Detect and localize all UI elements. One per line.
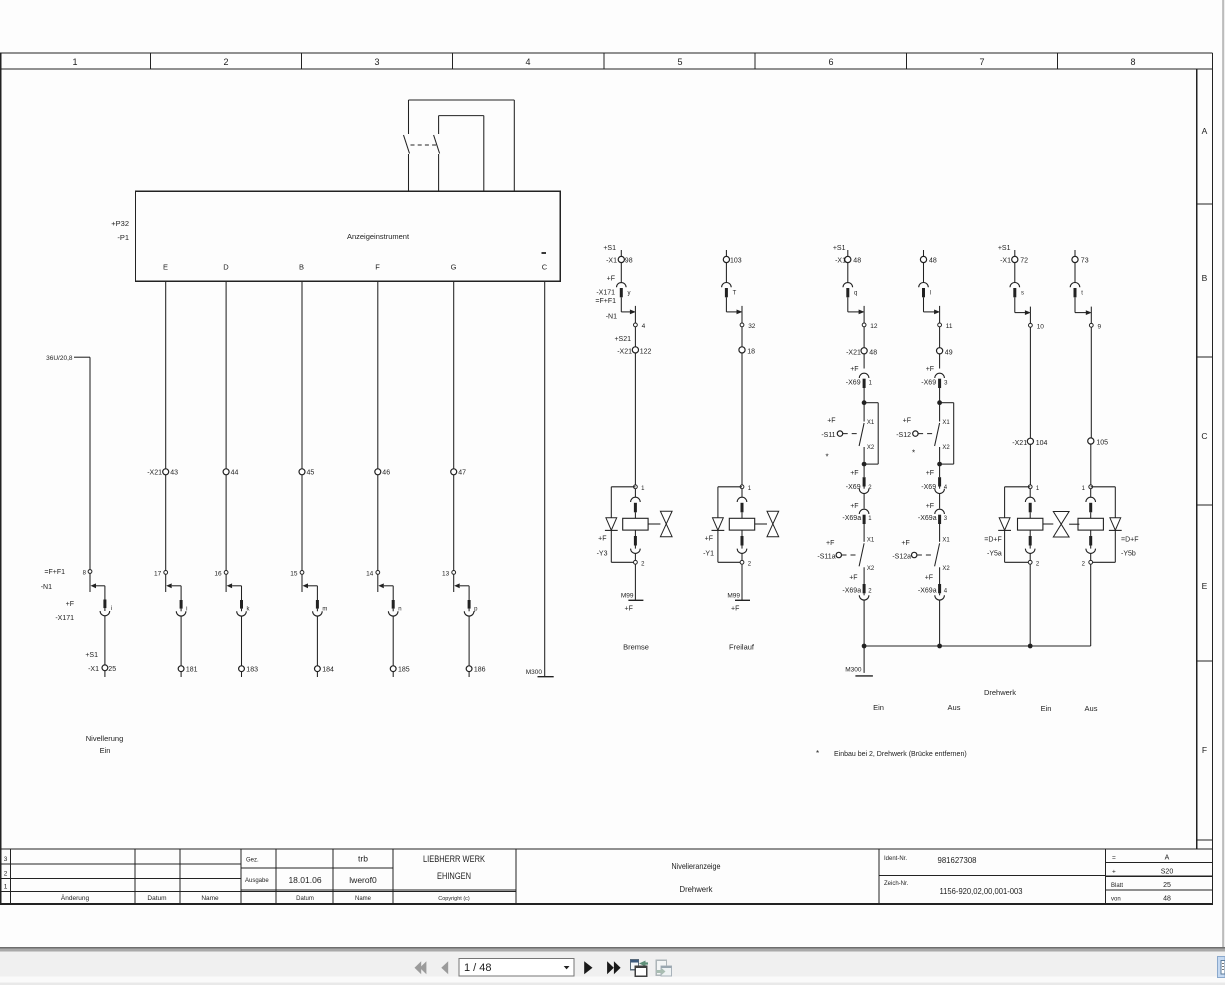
svg-text:+F: +F bbox=[901, 540, 909, 547]
svg-text:Änderung: Änderung bbox=[61, 894, 90, 902]
svg-text:+F: +F bbox=[705, 536, 713, 543]
svg-text:B: B bbox=[1202, 273, 1208, 283]
svg-text:17: 17 bbox=[154, 570, 162, 577]
svg-text:-S11a: -S11a bbox=[817, 553, 835, 560]
svg-text:X2: X2 bbox=[942, 445, 950, 451]
svg-text:7: 7 bbox=[979, 57, 984, 67]
svg-text:15: 15 bbox=[290, 570, 298, 577]
svg-text:3: 3 bbox=[374, 57, 379, 67]
svg-text:=F+F1: =F+F1 bbox=[44, 569, 65, 576]
svg-text:+F: +F bbox=[926, 366, 934, 373]
svg-text:-X1: -X1 bbox=[1000, 258, 1011, 265]
svg-text:105: 105 bbox=[1096, 440, 1108, 447]
svg-text:-X1: -X1 bbox=[835, 258, 846, 265]
svg-text:48: 48 bbox=[853, 258, 861, 265]
svg-text:X2: X2 bbox=[867, 445, 875, 451]
svg-text:m: m bbox=[322, 607, 327, 613]
svg-text:3: 3 bbox=[4, 856, 8, 863]
svg-text:X1: X1 bbox=[942, 420, 950, 426]
svg-text:103: 103 bbox=[730, 258, 742, 265]
svg-text:-X69a: -X69a bbox=[842, 588, 861, 595]
svg-text:X1: X1 bbox=[942, 538, 950, 544]
svg-text:Drehwerk: Drehwerk bbox=[680, 884, 714, 894]
svg-text:X2: X2 bbox=[867, 566, 875, 572]
svg-text:Copyright (c): Copyright (c) bbox=[438, 896, 470, 902]
svg-text:C: C bbox=[542, 263, 548, 272]
svg-text:10: 10 bbox=[1037, 324, 1045, 331]
svg-text:Ausgabe: Ausgabe bbox=[245, 878, 269, 884]
svg-text:11: 11 bbox=[946, 323, 953, 330]
svg-text:185: 185 bbox=[398, 667, 410, 674]
svg-text:X1: X1 bbox=[867, 420, 875, 426]
svg-text:+S1: +S1 bbox=[998, 245, 1011, 252]
svg-text:-X1: -X1 bbox=[88, 666, 99, 673]
svg-text:43: 43 bbox=[170, 470, 178, 477]
svg-text:F: F bbox=[375, 263, 380, 272]
svg-text:46: 46 bbox=[382, 470, 390, 477]
svg-text:2: 2 bbox=[4, 871, 8, 878]
svg-text:-N1: -N1 bbox=[41, 584, 52, 591]
svg-text:186: 186 bbox=[474, 667, 486, 674]
svg-text:+F: +F bbox=[598, 536, 606, 543]
svg-text:-X69: -X69 bbox=[921, 484, 936, 491]
svg-text:47: 47 bbox=[458, 470, 466, 477]
svg-text:E: E bbox=[1202, 581, 1208, 591]
svg-text:M300: M300 bbox=[845, 666, 862, 673]
svg-text:2: 2 bbox=[223, 57, 228, 67]
svg-text:-S11: -S11 bbox=[821, 432, 835, 439]
svg-text:-S12a: -S12a bbox=[892, 553, 911, 560]
svg-text:+F: +F bbox=[850, 470, 858, 477]
svg-text:48: 48 bbox=[869, 349, 877, 356]
svg-text:18.01.06: 18.01.06 bbox=[288, 875, 321, 885]
svg-text:-S12: -S12 bbox=[896, 432, 911, 439]
svg-text:lwerof0: lwerof0 bbox=[349, 875, 377, 885]
svg-text:32: 32 bbox=[748, 323, 756, 330]
svg-text:Blatt: Blatt bbox=[1111, 883, 1123, 889]
svg-text:-X69a: -X69a bbox=[918, 515, 937, 522]
svg-text:981627308: 981627308 bbox=[938, 855, 977, 865]
svg-text:=F+F1: =F+F1 bbox=[595, 298, 616, 305]
svg-text:1156-920,02,00,001-003: 1156-920,02,00,001-003 bbox=[940, 886, 1023, 896]
svg-text:-X1: -X1 bbox=[606, 258, 617, 265]
svg-text:14: 14 bbox=[366, 570, 374, 577]
svg-text:A: A bbox=[1202, 126, 1208, 136]
svg-text:G: G bbox=[451, 263, 457, 272]
svg-text:98: 98 bbox=[625, 258, 633, 265]
svg-text:Ident-Nr.: Ident-Nr. bbox=[884, 856, 907, 862]
svg-text:Freilauf: Freilauf bbox=[729, 643, 755, 652]
svg-text:+S1: +S1 bbox=[833, 245, 846, 252]
svg-text:73: 73 bbox=[1081, 258, 1089, 265]
svg-text:+F: +F bbox=[731, 606, 739, 613]
svg-text:X1: X1 bbox=[867, 538, 875, 544]
svg-text:6: 6 bbox=[828, 57, 833, 67]
svg-text:-X69: -X69 bbox=[846, 484, 861, 491]
svg-text:5: 5 bbox=[677, 57, 682, 67]
svg-text:-X69a: -X69a bbox=[918, 588, 937, 595]
svg-text:A: A bbox=[1165, 855, 1170, 862]
svg-text:Drehwerk: Drehwerk bbox=[984, 688, 1016, 697]
svg-text:l: l bbox=[930, 291, 931, 297]
svg-text:M99: M99 bbox=[621, 593, 634, 600]
svg-text:+F: +F bbox=[926, 470, 934, 477]
svg-text:*: * bbox=[912, 449, 915, 458]
svg-text:F: F bbox=[1202, 745, 1207, 755]
svg-text:i: i bbox=[111, 606, 112, 612]
svg-text:=D+F: =D+F bbox=[984, 536, 1002, 543]
svg-text:-Y5a: -Y5a bbox=[987, 551, 1002, 558]
svg-text:von: von bbox=[1111, 897, 1121, 903]
svg-text:-X21: -X21 bbox=[1012, 440, 1027, 447]
svg-text:+F: +F bbox=[903, 417, 911, 424]
svg-text:49: 49 bbox=[945, 349, 953, 356]
svg-text:+S1: +S1 bbox=[85, 652, 98, 659]
svg-text:Nivelieranzeige: Nivelieranzeige bbox=[672, 861, 721, 871]
svg-text:48: 48 bbox=[929, 258, 937, 265]
svg-text:-X21: -X21 bbox=[617, 349, 632, 356]
svg-text:-X21: -X21 bbox=[846, 349, 861, 356]
svg-text:+F: +F bbox=[849, 574, 857, 581]
svg-text:Aus: Aus bbox=[1085, 704, 1098, 713]
svg-text:+F: +F bbox=[66, 601, 74, 608]
svg-text:Ein: Ein bbox=[100, 746, 111, 755]
svg-text:i: i bbox=[186, 607, 187, 613]
svg-text:y: y bbox=[628, 291, 631, 297]
svg-text:-X69a: -X69a bbox=[842, 515, 861, 522]
svg-text:-X171: -X171 bbox=[596, 290, 615, 297]
svg-text:-Y1: -Y1 bbox=[703, 551, 714, 558]
svg-text:181: 181 bbox=[186, 667, 198, 674]
svg-text:Gez.: Gez. bbox=[246, 858, 259, 864]
svg-text:25: 25 bbox=[1163, 882, 1171, 889]
svg-text:+F: +F bbox=[850, 366, 858, 373]
svg-text:+: + bbox=[1112, 868, 1116, 875]
svg-text:44: 44 bbox=[231, 470, 239, 477]
svg-text:16: 16 bbox=[214, 570, 222, 577]
svg-text:122: 122 bbox=[640, 349, 652, 356]
svg-text:n: n bbox=[398, 607, 401, 613]
svg-text:-Y5b: -Y5b bbox=[1121, 551, 1136, 558]
svg-text:8: 8 bbox=[1130, 57, 1135, 67]
svg-text:Ein: Ein bbox=[1041, 704, 1052, 713]
svg-text:Nivellerung: Nivellerung bbox=[86, 734, 124, 743]
svg-text:Name: Name bbox=[201, 895, 219, 902]
svg-text:=: = bbox=[1112, 855, 1116, 862]
svg-text:M99: M99 bbox=[727, 593, 740, 600]
svg-text:Ein: Ein bbox=[873, 703, 884, 712]
svg-text:1: 1 bbox=[72, 57, 77, 67]
svg-text:45: 45 bbox=[307, 470, 315, 477]
svg-text:12: 12 bbox=[870, 323, 878, 330]
svg-text:+S1: +S1 bbox=[603, 245, 616, 252]
svg-text:=D+F: =D+F bbox=[1121, 536, 1139, 543]
svg-text:trb: trb bbox=[358, 854, 368, 864]
svg-text:Bremse: Bremse bbox=[623, 643, 649, 652]
svg-text:q: q bbox=[854, 291, 857, 297]
svg-text:4: 4 bbox=[525, 57, 530, 67]
svg-text:Name: Name bbox=[355, 896, 372, 902]
svg-text:s: s bbox=[1021, 291, 1024, 297]
svg-text:S20: S20 bbox=[1161, 869, 1174, 876]
svg-text:-N1: -N1 bbox=[606, 314, 617, 321]
svg-text:+P32: +P32 bbox=[111, 219, 129, 228]
svg-text:Einbau bei 2, Drehwerk (Brücke: Einbau bei 2, Drehwerk (Brücke entfernen… bbox=[834, 751, 967, 758]
svg-text:9: 9 bbox=[1098, 324, 1102, 331]
svg-text:25: 25 bbox=[108, 666, 116, 673]
svg-text:*: * bbox=[826, 453, 829, 462]
svg-text:+S21: +S21 bbox=[614, 336, 631, 343]
svg-text:E: E bbox=[163, 263, 168, 272]
svg-text:183: 183 bbox=[246, 667, 258, 674]
svg-text:+F: +F bbox=[826, 540, 834, 547]
svg-text:*: * bbox=[816, 749, 819, 758]
svg-text:Datum: Datum bbox=[296, 896, 314, 902]
svg-text:EHINGEN: EHINGEN bbox=[437, 871, 471, 882]
svg-text:-P1: -P1 bbox=[117, 233, 129, 242]
svg-text:Aus: Aus bbox=[948, 703, 961, 712]
svg-text:C: C bbox=[1201, 431, 1207, 441]
svg-text:1 / 48: 1 / 48 bbox=[464, 962, 492, 974]
svg-text:+F: +F bbox=[607, 276, 615, 283]
svg-text:-X21: -X21 bbox=[147, 470, 162, 477]
svg-text:+F: +F bbox=[926, 503, 934, 510]
svg-text:B: B bbox=[299, 263, 304, 272]
svg-text:1: 1 bbox=[4, 884, 8, 891]
svg-text:+F: +F bbox=[850, 503, 858, 510]
svg-text:48: 48 bbox=[1163, 896, 1171, 903]
svg-text:+F: +F bbox=[925, 574, 933, 581]
svg-text:104: 104 bbox=[1036, 440, 1048, 447]
svg-text:-X171: -X171 bbox=[55, 615, 74, 622]
svg-text:184: 184 bbox=[322, 667, 334, 674]
svg-text:D: D bbox=[223, 263, 229, 272]
svg-text:72: 72 bbox=[1020, 258, 1028, 265]
svg-text:Anzeigeinstrument: Anzeigeinstrument bbox=[347, 232, 410, 241]
svg-text:Datum: Datum bbox=[147, 895, 166, 902]
svg-text:+F: +F bbox=[827, 417, 835, 424]
svg-text:4: 4 bbox=[642, 323, 646, 330]
svg-text:-X69: -X69 bbox=[921, 380, 936, 387]
svg-text:Zeich-Nr.: Zeich-Nr. bbox=[884, 881, 909, 887]
svg-text:X2: X2 bbox=[942, 566, 950, 572]
svg-text:LIEBHERR WERK: LIEBHERR WERK bbox=[423, 854, 486, 865]
svg-text:36U/20,8: 36U/20,8 bbox=[46, 355, 73, 362]
svg-text:+F: +F bbox=[625, 606, 633, 613]
svg-text:18: 18 bbox=[747, 349, 755, 356]
svg-text:-X69: -X69 bbox=[846, 380, 861, 387]
svg-text:T: T bbox=[733, 291, 737, 297]
svg-text:13: 13 bbox=[442, 570, 450, 577]
svg-text:-Y3: -Y3 bbox=[597, 551, 608, 558]
svg-text:M300: M300 bbox=[526, 669, 543, 676]
